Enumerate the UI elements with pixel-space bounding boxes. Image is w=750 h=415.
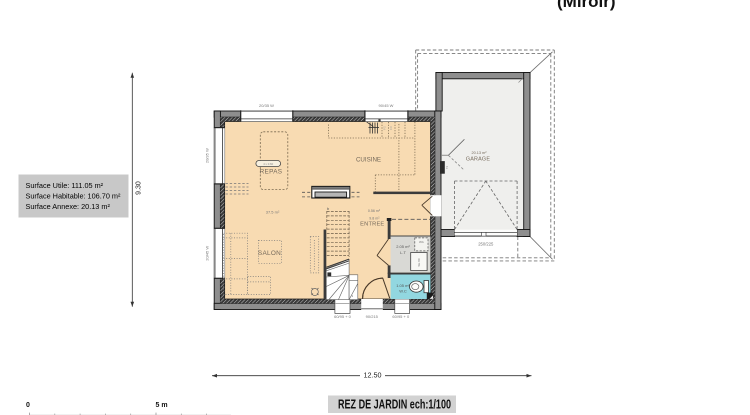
svg-text:REPAS: REPAS	[260, 169, 283, 176]
svg-text:250/225: 250/225	[478, 242, 494, 247]
svg-text:0.56 m²: 0.56 m²	[368, 209, 381, 213]
svg-text:REZ DE JARDIN ech:1/100: REZ DE JARDIN ech:1/100	[338, 398, 451, 412]
svg-text:9.8 m²: 9.8 m²	[369, 217, 380, 221]
svg-text:90/215: 90/215	[366, 314, 379, 319]
svg-text:GARAGE: GARAGE	[466, 157, 490, 163]
svg-text:90/45 W: 90/45 W	[379, 103, 394, 108]
svg-text:20/35 W: 20/35 W	[259, 103, 274, 108]
svg-text:CUISINE: CUISINE	[356, 157, 381, 164]
svg-text:W.C: W.C	[399, 289, 407, 294]
svg-text:20.13 m²: 20.13 m²	[472, 151, 488, 155]
svg-text:L.T: L.T	[400, 250, 406, 255]
svg-text:9.30: 9.30	[136, 181, 143, 195]
svg-text:73: 73	[445, 166, 449, 170]
svg-text:Surface Habitable: 106.70 m²: Surface Habitable: 106.70 m²	[26, 192, 121, 201]
svg-text:SALON: SALON	[258, 250, 281, 257]
svg-text:20/45 W: 20/45 W	[205, 246, 210, 261]
svg-text:(Miroir): (Miroir)	[557, 0, 616, 11]
svg-text:2.05 m²: 2.05 m²	[396, 244, 410, 249]
svg-text:ENTREE: ENTREE	[360, 222, 384, 228]
svg-text:12.50: 12.50	[364, 371, 382, 380]
svg-text:SE 80: SE 80	[417, 258, 421, 267]
svg-text:Surface Utile: 111.05 m²: Surface Utile: 111.05 m²	[26, 181, 104, 190]
svg-text:37.5 m²: 37.5 m²	[266, 210, 280, 215]
svg-text:0: 0	[26, 402, 30, 409]
svg-text:FO: FO	[389, 126, 393, 130]
svg-text:4 x 0.60: 4 x 0.60	[263, 162, 273, 166]
svg-text:1.05 m²: 1.05 m²	[396, 283, 410, 288]
svg-text:FG: FG	[383, 126, 387, 130]
svg-text:5 m: 5 m	[156, 402, 168, 409]
svg-text:60/95 + 0: 60/95 + 0	[392, 314, 410, 319]
svg-text:WA: WA	[419, 240, 424, 244]
svg-text:20/35 W: 20/35 W	[205, 148, 210, 163]
svg-text:Surface Annexe: 20.13 m²: Surface Annexe: 20.13 m²	[26, 202, 111, 211]
svg-text:60/95 + 0: 60/95 + 0	[334, 314, 352, 319]
